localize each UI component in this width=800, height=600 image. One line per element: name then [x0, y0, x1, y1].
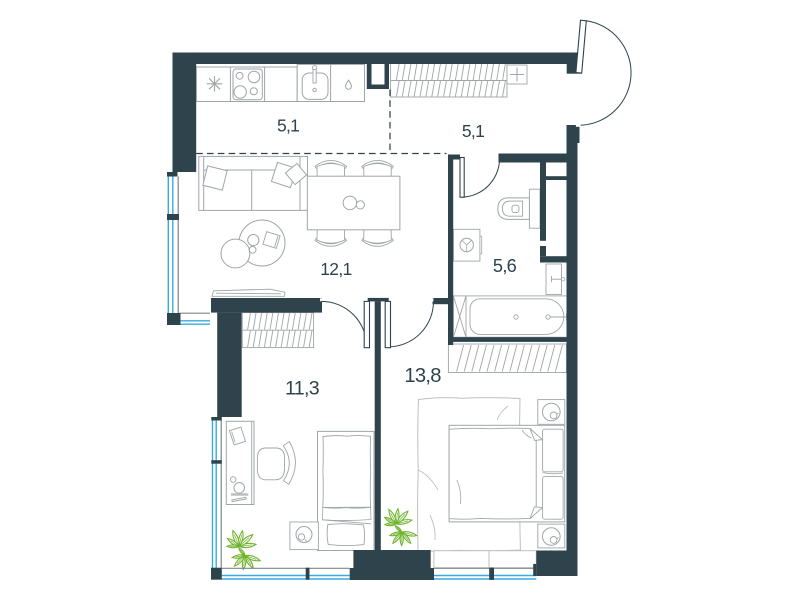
svg-text:12,1: 12,1 [320, 259, 351, 279]
svg-text:13,8: 13,8 [404, 365, 441, 387]
svg-text:5,1: 5,1 [462, 121, 484, 141]
svg-text:5,6: 5,6 [493, 256, 517, 276]
svg-text:11,3: 11,3 [285, 378, 320, 400]
svg-text:5,1: 5,1 [277, 115, 299, 135]
